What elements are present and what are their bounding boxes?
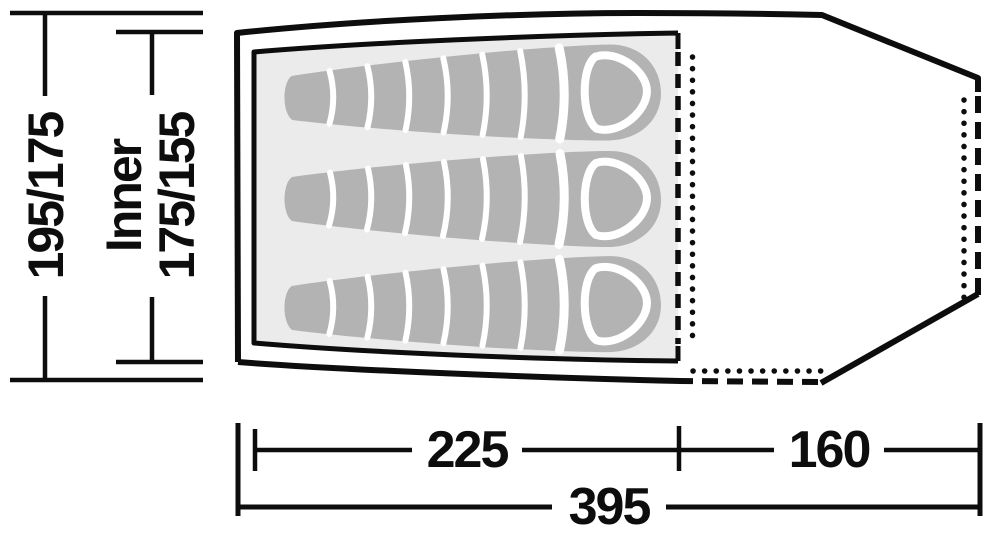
dimension-inner-width: Inner 175/155 bbox=[96, 32, 205, 362]
dimension-porch-length-label: 160 bbox=[789, 421, 870, 479]
dimension-row-lengths: 225 160 bbox=[255, 421, 980, 479]
dimension-total-length-label: 395 bbox=[569, 478, 651, 536]
outer-tent-bottom-solid bbox=[238, 362, 681, 381]
dimension-inner-width-label: 175/155 bbox=[149, 111, 205, 279]
porch-rear-diagonal bbox=[821, 294, 978, 383]
dimension-inner-length-label: 225 bbox=[427, 421, 509, 479]
dimension-outer-width-label: 195/175 bbox=[18, 111, 74, 279]
dimension-inner-label: Inner bbox=[96, 138, 152, 252]
diagram-canvas: 195/175 Inner 175/155 225 160 395 bbox=[0, 0, 996, 540]
tent-dimension-diagram: 195/175 Inner 175/155 225 160 395 bbox=[0, 0, 996, 540]
porch-bottom-dashed bbox=[679, 381, 818, 382]
